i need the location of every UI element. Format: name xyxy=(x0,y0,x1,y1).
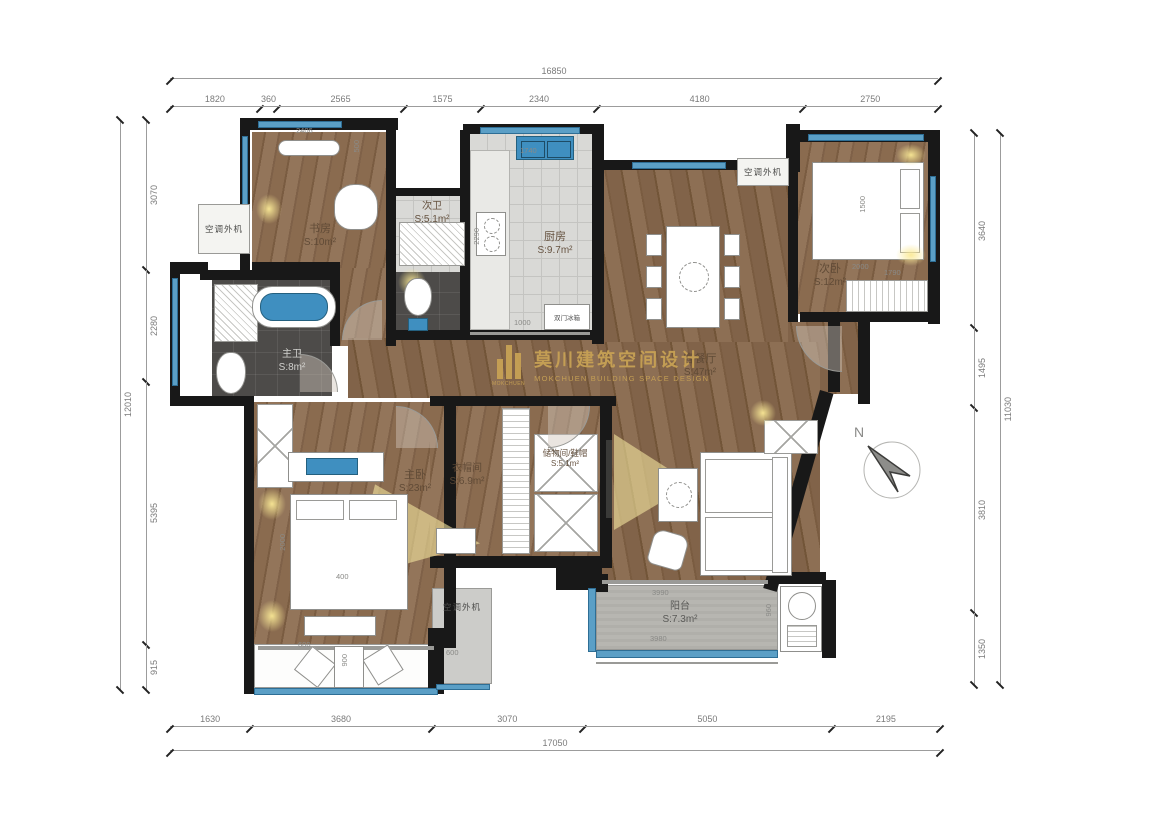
window xyxy=(480,127,580,134)
lamp-glow xyxy=(258,600,286,632)
washer-cabinet xyxy=(780,586,822,652)
inline-dim: 600 xyxy=(446,648,459,657)
dim-value: 2280 xyxy=(146,270,161,381)
dim-value: 17050 xyxy=(170,736,940,751)
dim-value: 4180 xyxy=(597,92,803,107)
toilet-icon xyxy=(216,352,246,394)
label-guest-bath: 次卫 S:5.1m² xyxy=(392,200,472,226)
ac-unit-label: 空调外机 xyxy=(744,166,782,178)
sofa-icon xyxy=(700,452,792,576)
bathtub-icon xyxy=(252,286,336,328)
dim-value: 3640 xyxy=(974,133,989,328)
wall xyxy=(244,648,254,694)
window xyxy=(808,134,924,141)
inline-dim: 1740 xyxy=(520,146,537,155)
fridge-icon: 双门冰箱 xyxy=(544,304,590,330)
ac-unit-label: 空调外机 xyxy=(443,601,481,613)
wall xyxy=(788,142,798,322)
ac-unit-box: 空调外机 xyxy=(737,158,789,186)
dim-value: 2340 xyxy=(481,92,596,107)
storage-cabinet-icon xyxy=(534,494,598,552)
dim-top-segments: 1820 360 2565 1575 2340 4180 2750 xyxy=(170,92,938,107)
wall xyxy=(858,318,870,404)
label-closet: 衣帽间 S:6.9m² xyxy=(432,462,502,488)
shower-icon xyxy=(399,222,465,266)
dim-value: 3680 xyxy=(250,712,431,727)
watermark-title-en: MOKCHUEN BUILDING SPACE DESIGN xyxy=(534,374,709,383)
wall xyxy=(244,396,254,648)
dim-value: 2750 xyxy=(803,92,938,107)
watermark-title-cn: 莫川建筑空间设计 xyxy=(534,346,709,372)
wall xyxy=(200,270,336,280)
dim-value: 3810 xyxy=(974,408,989,612)
lamp-glow xyxy=(256,194,282,224)
inline-dim: 3990 xyxy=(652,588,669,597)
label-study: 书房 S:10m² xyxy=(280,222,360,249)
dim-right-total: 11030 xyxy=(1000,133,1015,685)
sink-icon xyxy=(408,318,428,331)
wall xyxy=(386,130,396,346)
tv-icon xyxy=(306,458,358,475)
dim-value: 1575 xyxy=(404,92,482,107)
wall xyxy=(822,580,836,658)
wall xyxy=(390,188,470,196)
dim-value: 1350 xyxy=(974,613,989,685)
dim-value: 11030 xyxy=(1000,133,1015,685)
window xyxy=(242,136,248,206)
dim-value: 16850 xyxy=(170,64,938,79)
label-balcony: 阳台 S:7.3m² xyxy=(640,600,720,626)
fridge-label: 双门冰箱 xyxy=(554,312,580,322)
inline-dim: 2000 xyxy=(852,262,869,271)
slider-line xyxy=(602,580,768,584)
dim-bottom-segments: 1630 3680 3070 5050 2195 xyxy=(170,712,940,727)
compass: N xyxy=(848,424,928,508)
centerpiece-icon xyxy=(679,262,709,292)
inline-dim: 960 xyxy=(764,604,773,617)
lamp-glow xyxy=(258,488,286,520)
dining-chair-icon xyxy=(646,234,662,256)
lamp-glow xyxy=(896,244,926,266)
wall xyxy=(252,262,340,270)
dresser-icon xyxy=(436,528,476,554)
inline-dim: 900 xyxy=(340,654,349,667)
inline-dim: 400 xyxy=(336,572,349,581)
watermark-logo-icon: MOKCHUEN xyxy=(492,341,525,387)
plant-icon xyxy=(666,482,692,508)
wall xyxy=(170,396,254,406)
wall xyxy=(592,124,604,344)
side-cabinet-icon xyxy=(764,420,818,454)
window xyxy=(588,588,596,652)
dining-chair-icon xyxy=(724,298,740,320)
closet-shelves-icon xyxy=(502,408,530,554)
dim-value: 2195 xyxy=(832,712,940,727)
dim-left-segments: 3070 2280 5395 915 xyxy=(146,120,161,690)
dim-value: 3070 xyxy=(432,712,583,727)
dim-left-total: 12010 xyxy=(120,120,135,690)
dining-chair-icon xyxy=(646,266,662,288)
inline-dim: 600 xyxy=(298,640,311,649)
label-storage: 储物间/鞋帽 S:5.1m² xyxy=(520,448,610,469)
dim-value: 5050 xyxy=(583,712,832,727)
north-arrow-icon xyxy=(854,434,926,506)
window xyxy=(172,278,178,386)
label-master-bath: 主卫 S:8m² xyxy=(252,348,332,374)
window xyxy=(930,176,936,262)
watermark-logo-caption: MOKCHUEN xyxy=(492,381,525,387)
window xyxy=(254,688,438,695)
bed-icon xyxy=(290,494,408,610)
dim-value: 12010 xyxy=(120,120,135,690)
bench-icon xyxy=(304,616,376,636)
dim-top-total: 16850 xyxy=(170,64,938,79)
dining-chair-icon xyxy=(724,234,740,256)
dim-value: 360 xyxy=(260,92,278,107)
study-shelf-icon xyxy=(278,140,340,156)
wall xyxy=(430,396,616,406)
dim-value: 1495 xyxy=(974,328,989,408)
floor-plan-canvas: 16850 1820 360 2565 1575 2340 4180 2750 … xyxy=(0,0,1150,813)
inline-dim: 2406 xyxy=(296,126,313,135)
shower-icon xyxy=(214,284,258,342)
dim-bottom-total: 17050 xyxy=(170,736,940,751)
window xyxy=(632,162,726,169)
slider-line xyxy=(470,332,590,335)
toilet-icon xyxy=(404,278,432,316)
dim-value: 1630 xyxy=(170,712,250,727)
inline-dim: 1500 xyxy=(858,196,867,213)
dim-value: 3070 xyxy=(146,120,161,270)
dim-value: 2565 xyxy=(277,92,403,107)
ac-unit-box: 空调外机 xyxy=(198,204,250,254)
lamp-glow xyxy=(750,400,776,426)
dim-right-segments: 3640 1495 3810 1350 xyxy=(974,133,989,685)
inline-dim: 1000 xyxy=(514,318,531,327)
window xyxy=(436,684,490,690)
dim-value: 5395 xyxy=(146,382,161,646)
dining-chair-icon xyxy=(646,298,662,320)
inline-dim: 2000 xyxy=(278,534,287,551)
watermark: MOKCHUEN 莫川建筑空间设计 MOKCHUEN BUILDING SPAC… xyxy=(492,341,709,387)
balcony-rail-line xyxy=(596,662,778,664)
lamp-glow xyxy=(896,144,926,166)
wall xyxy=(800,312,940,322)
dining-chair-icon xyxy=(724,266,740,288)
inline-dim: 3980 xyxy=(650,634,667,643)
dim-value: 915 xyxy=(146,645,161,690)
inline-dim: 500 xyxy=(352,140,361,153)
inline-dim: 1790 xyxy=(884,268,901,277)
dim-value: 1820 xyxy=(170,92,260,107)
ac-unit-label: 空调外机 xyxy=(205,223,243,235)
inline-dim: 2290 xyxy=(472,228,481,245)
window xyxy=(596,650,778,658)
side-table-icon xyxy=(334,646,364,688)
ac-unit-box: 空调外机 xyxy=(432,598,492,616)
label-kitchen: 厨房 S:9.7m² xyxy=(520,230,590,257)
